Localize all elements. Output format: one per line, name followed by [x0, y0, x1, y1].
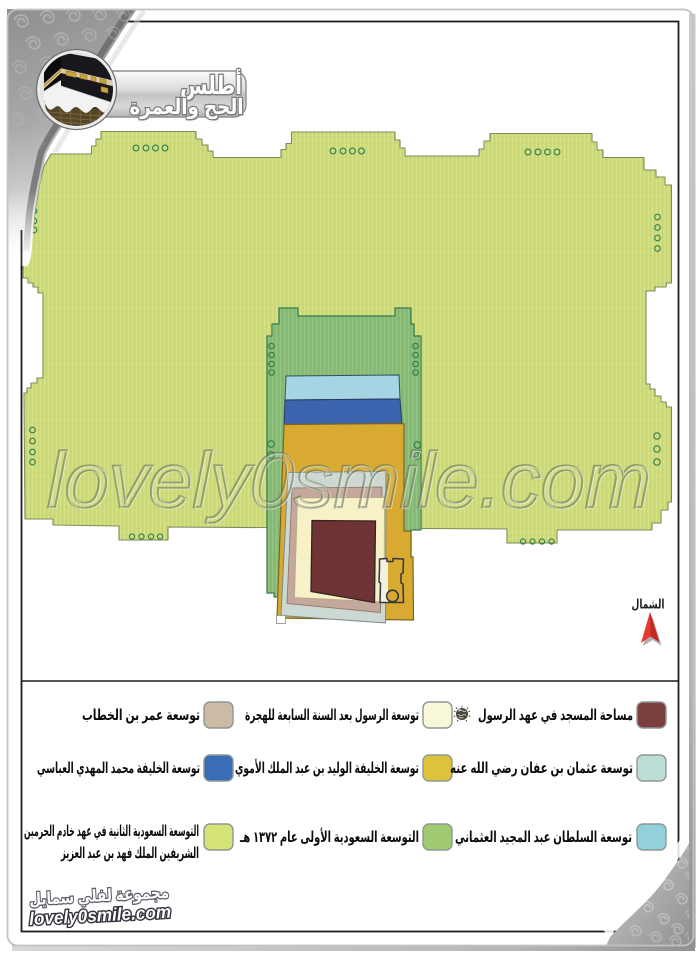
svg-text:توسعة عثمان بن عفان رضي الله ع: توسعة عثمان بن عفان رضي الله عنه — [450, 760, 633, 777]
svg-text:توسعة عمر بن الخطاب: توسعة عمر بن الخطاب — [82, 707, 200, 724]
svg-text:توسعة الرسول بعد السنة السابعة: توسعة الرسول بعد السنة السابعة للهجرة — [245, 707, 419, 724]
svg-text:الشريفين الملك فهد بن عبد العز: الشريفين الملك فهد بن عبد العزيز — [60, 845, 199, 862]
svg-text:التوسعة السعودية الأولى عام ١٣: التوسعة السعودية الأولى عام ١٣٧٢ هـ — [239, 828, 419, 846]
svg-text:الحج والعمرة: الحج والعمرة — [130, 96, 244, 119]
svg-text:lovely0smile.com: lovely0smile.com — [48, 437, 652, 525]
svg-text:الشمال: الشمال — [632, 597, 665, 612]
svg-text:توسعة السلطان عبد المجيد العثم: توسعة السلطان عبد المجيد العثماني — [455, 829, 632, 846]
svg-text:توسعة الخليفة محمد المهدي العب: توسعة الخليفة محمد المهدي العباسي — [37, 760, 200, 778]
svg-text:توسعة الخليفة الوليد بن عبد ال: توسعة الخليفة الوليد بن عبد الملك الأموي — [235, 759, 419, 778]
svg-text:مساحة المسجد في عهد الرسول: مساحة المسجد في عهد الرسول — [478, 707, 633, 724]
svg-text:التوسعة السعودية الثانية في عه: التوسعة السعودية الثانية في عهد خادم الح… — [24, 823, 199, 840]
